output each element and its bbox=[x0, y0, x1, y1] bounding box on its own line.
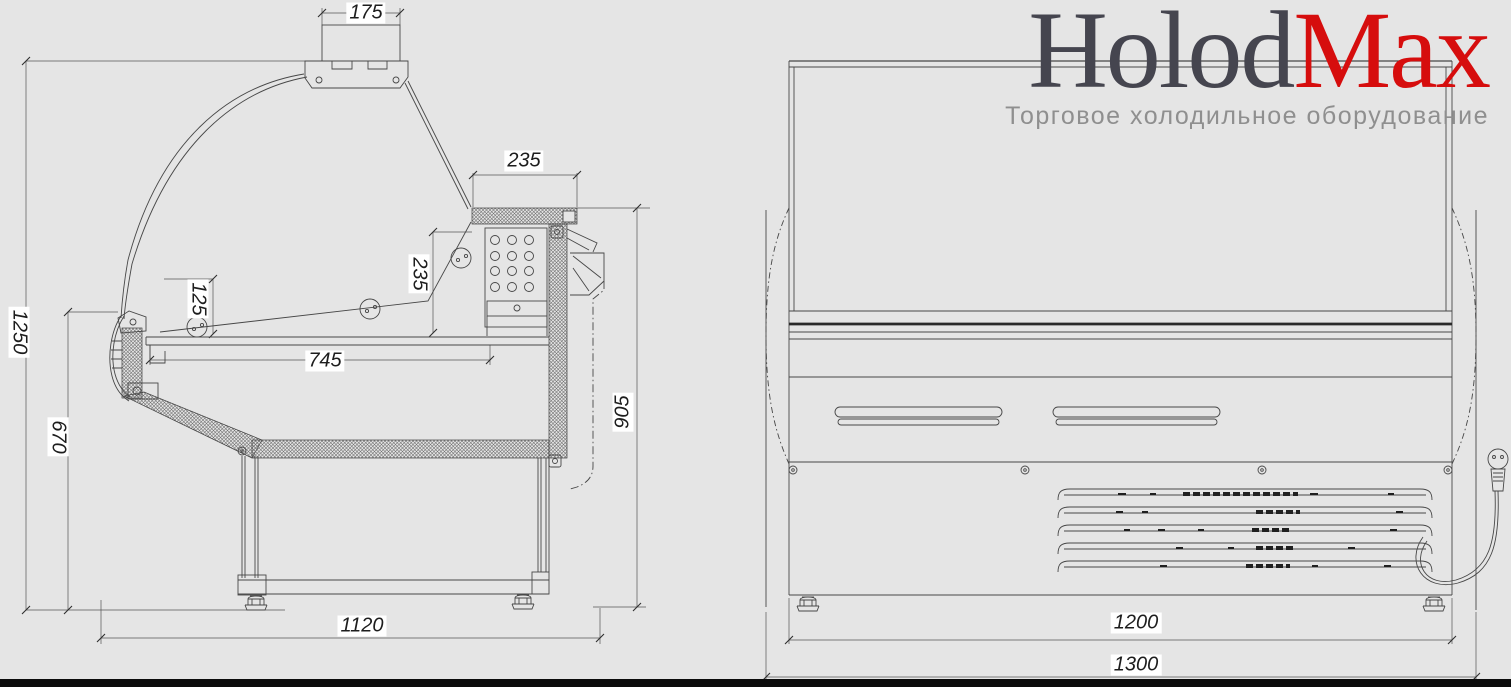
front-outline bbox=[766, 61, 1508, 611]
dim-label-deck-depth: 745 bbox=[305, 351, 344, 372]
perforated-panel bbox=[485, 228, 547, 336]
insulation-hatch bbox=[122, 208, 577, 458]
dim-label-canopy-width: 175 bbox=[346, 3, 385, 24]
logo-max: Max bbox=[1293, 0, 1489, 111]
blueprint-page: 175 235 125 235 745 905 670 1250 1120 12… bbox=[0, 0, 1511, 687]
front-glass-curve bbox=[121, 74, 307, 319]
handle-slots bbox=[835, 407, 1220, 425]
canopy-drawing bbox=[305, 25, 408, 88]
panel-screws bbox=[789, 466, 1452, 474]
logo-holod: Holod bbox=[1028, 0, 1293, 111]
footer-bar bbox=[0, 679, 1511, 687]
legs-and-base bbox=[238, 447, 549, 610]
side-view-drawing bbox=[22, 8, 650, 644]
end-caps bbox=[766, 208, 1476, 610]
logo-wordmark: HolodMax bbox=[1005, 2, 1489, 99]
dim-label-shelf-height: 235 bbox=[409, 254, 430, 293]
ventilation-grille bbox=[1058, 489, 1432, 572]
dim-label-front-height: 670 bbox=[48, 417, 69, 456]
front-view-drawing bbox=[762, 61, 1508, 681]
dim-label-body-width: 1200 bbox=[1111, 613, 1162, 634]
side-outline bbox=[110, 25, 604, 610]
logo-tagline: Торговое холодильное оборудование bbox=[1005, 102, 1489, 131]
dim-label-front-glass-rise: 125 bbox=[188, 279, 209, 318]
logo: HolodMax Торговое холодильное оборудован… bbox=[1005, 2, 1489, 131]
dim-label-base-depth: 1120 bbox=[337, 616, 386, 637]
dim-ticks bbox=[22, 9, 641, 642]
dim-label-overall-width: 1300 bbox=[1111, 655, 1162, 676]
rear-glass-strut bbox=[405, 81, 471, 209]
dim-label-overall-height: 1250 bbox=[9, 307, 30, 358]
dim-label-rear-height: 905 bbox=[613, 392, 634, 431]
dim-label-top-shelf-depth: 235 bbox=[504, 151, 543, 172]
